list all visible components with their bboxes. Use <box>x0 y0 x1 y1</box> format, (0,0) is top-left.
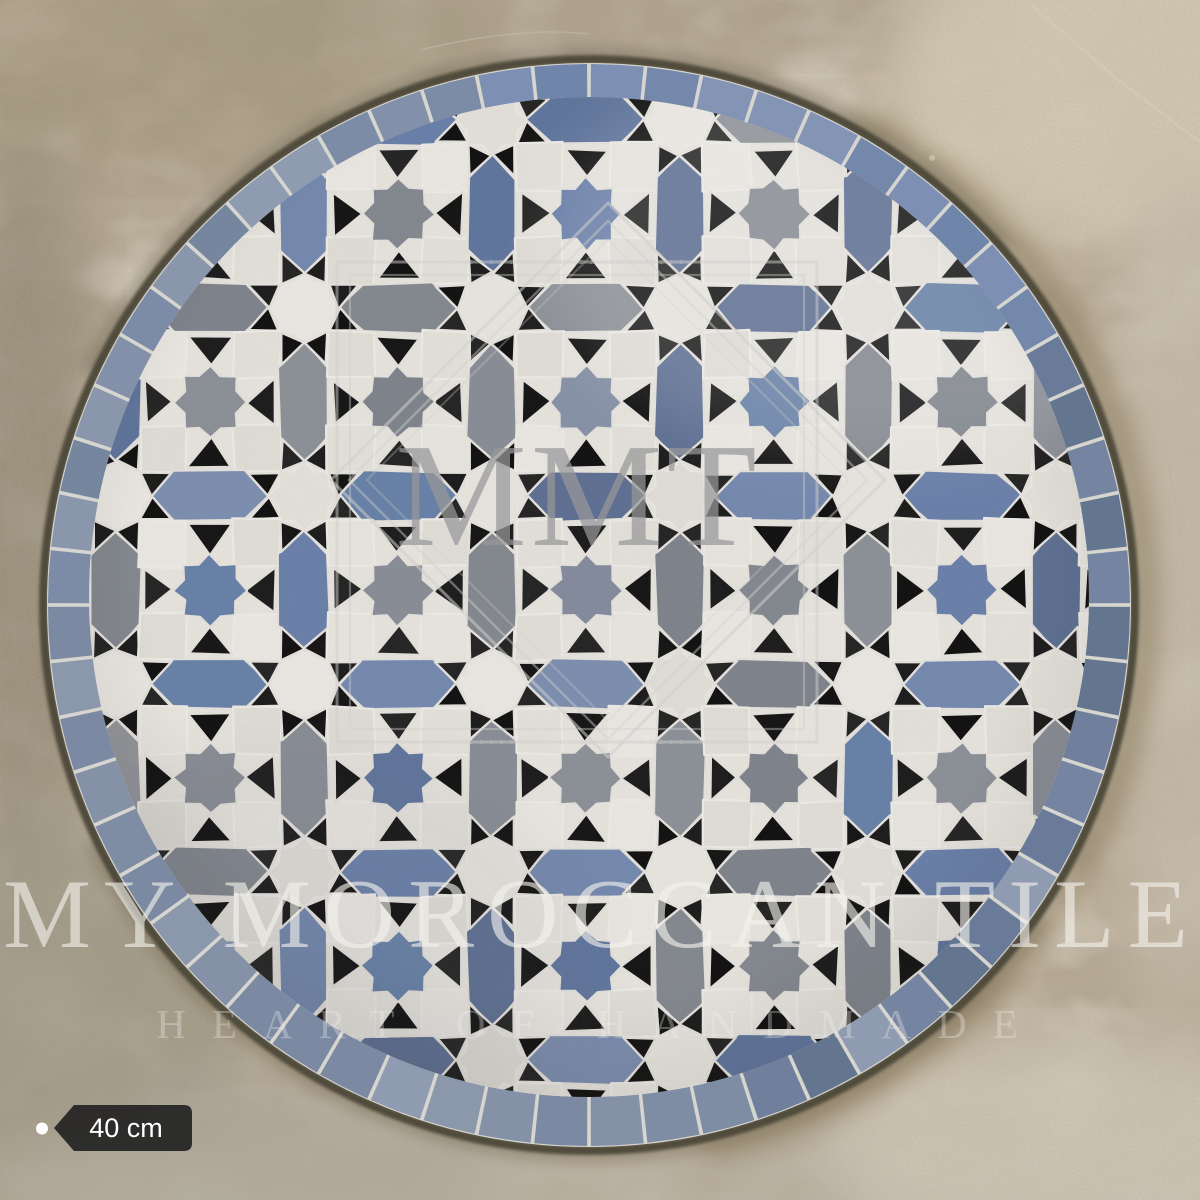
svg-text:HEART OF HANDMADE: HEART OF HANDMADE <box>156 1001 1044 1047</box>
svg-text:MMT: MMT <box>395 414 761 578</box>
svg-text:40 cm: 40 cm <box>89 1113 163 1143</box>
svg-text:MY MOROCCAN TILE: MY MOROCCAN TILE <box>3 860 1200 969</box>
